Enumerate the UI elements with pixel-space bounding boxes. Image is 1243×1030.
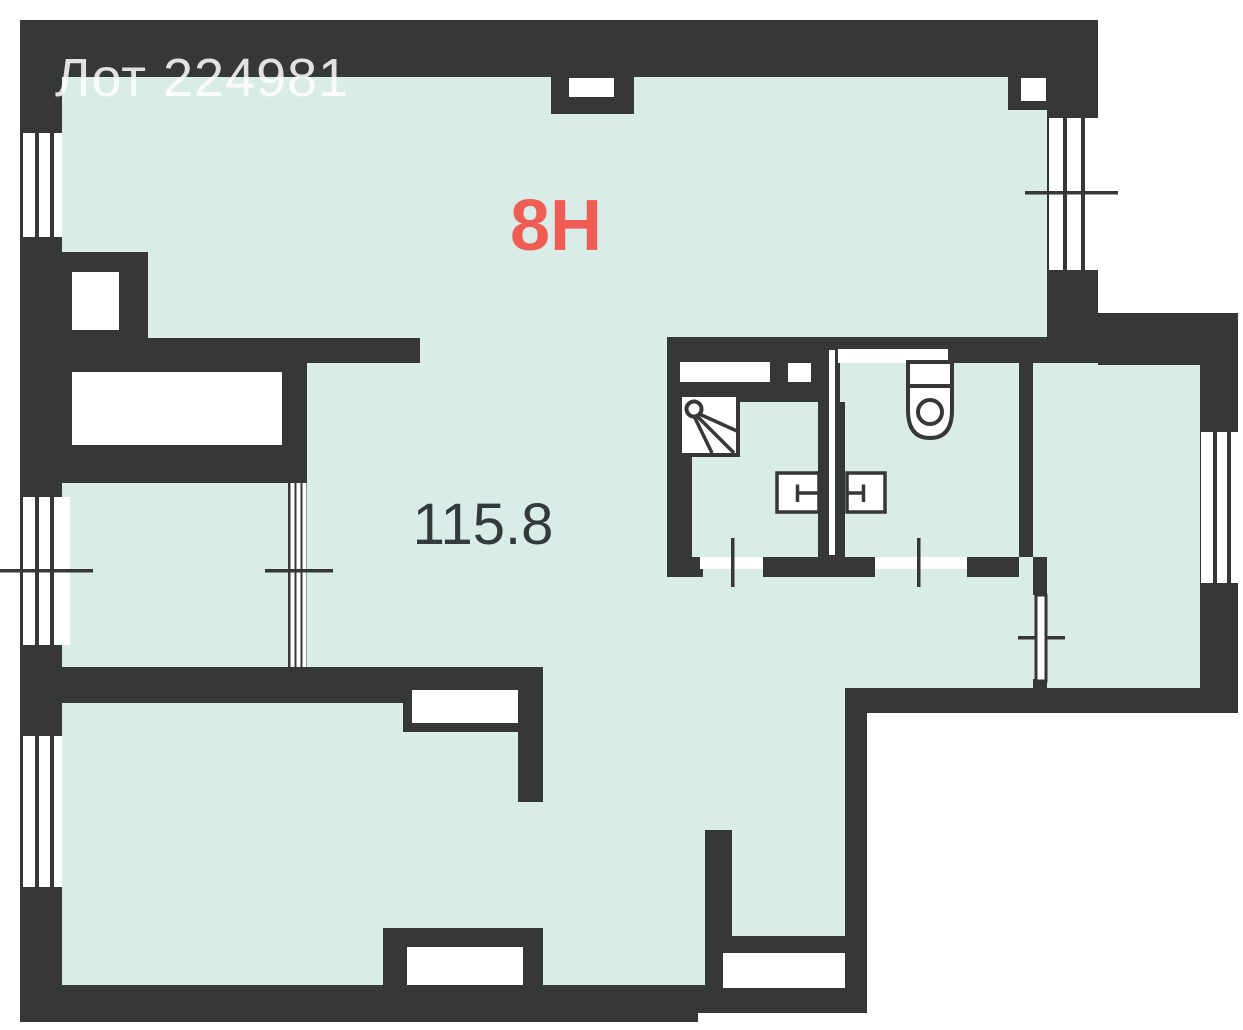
- shaft: [407, 947, 523, 985]
- window-sill-mark: [1025, 191, 1118, 195]
- door-leaf: [1036, 595, 1046, 681]
- floor-plan: Лот 224981 8Н 115.8: [0, 0, 1243, 1030]
- toilet-icon: [908, 362, 952, 438]
- entrance-recess: [723, 953, 845, 988]
- shaft: [412, 690, 518, 723]
- sink-icon: [847, 473, 885, 512]
- wall-slit: [829, 350, 835, 555]
- balcony: [72, 372, 282, 445]
- shaft: [1021, 78, 1046, 101]
- window: [1201, 432, 1238, 583]
- floor-plan-page: Лот 224981 8Н 115.8: [0, 0, 1243, 1030]
- window-sill-mark: [265, 569, 333, 573]
- area-value: 115.8: [413, 492, 554, 557]
- window: [23, 133, 62, 237]
- shaft: [569, 78, 614, 97]
- window: [23, 736, 62, 887]
- niche: [788, 363, 811, 382]
- niche: [680, 362, 770, 382]
- door-opening: [875, 557, 967, 569]
- door-mark: [731, 538, 735, 587]
- unit-number: 8Н: [510, 186, 602, 266]
- glazed-partition: [288, 483, 307, 667]
- sink-icon: [777, 473, 819, 512]
- lot-number: Лот 224981: [55, 48, 349, 108]
- window-sill-mark: [0, 569, 93, 573]
- door-mark: [917, 538, 921, 587]
- shaft: [72, 272, 119, 330]
- shower-icon: [680, 395, 738, 455]
